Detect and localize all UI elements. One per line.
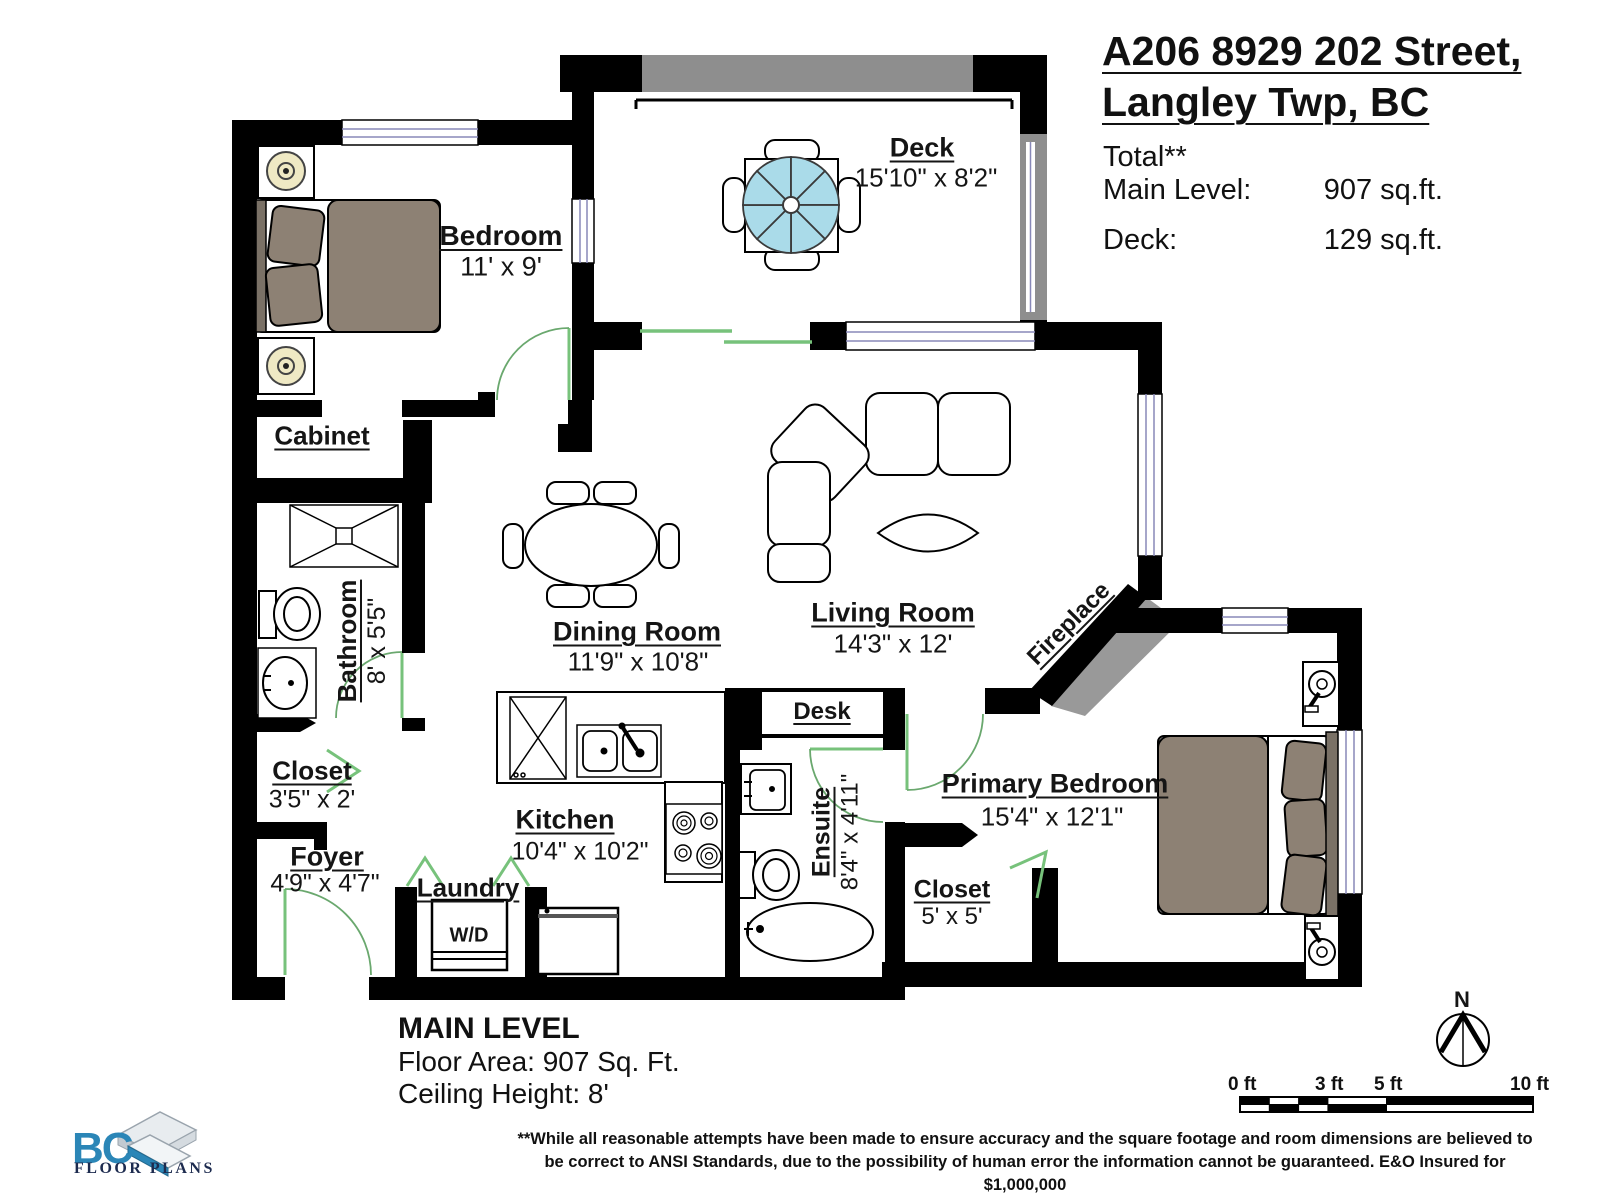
deck-area-row: Deck: 129 sq.ft. <box>1103 224 1443 257</box>
compass-icon <box>1437 1014 1489 1066</box>
window-bedroom-deck <box>572 199 594 263</box>
window-living-right <box>1138 394 1162 556</box>
level-title: MAIN LEVEL <box>398 1012 580 1046</box>
title-line1: A206 8929 202 Street, <box>1102 26 1521 77</box>
washer-dryer-label: W/D <box>450 925 489 948</box>
room-label-ensuite-group: Ensuite 8'4" x 4'11" <box>808 774 865 891</box>
main-level-value: 907 sq.ft. <box>1324 174 1443 207</box>
room-dims-primary: 15'4" x 12'1" <box>981 802 1124 833</box>
toilet-icon <box>259 588 320 640</box>
bedroom-door-icon <box>497 328 569 400</box>
room-label-ensuite: Ensuite <box>808 774 837 891</box>
ensuite-toilet-icon <box>739 850 799 900</box>
room-dims-kitchen: 10'4" x 10'2" <box>511 838 648 867</box>
room-label-closet-hall: Closet <box>272 756 351 787</box>
room-label-cabinet: Cabinet <box>274 421 369 452</box>
room-label-bathroom: Bathroom <box>332 580 363 703</box>
room-label-primary: Primary Bedroom <box>942 769 1169 800</box>
scale-label-3: 3 ft <box>1315 1074 1344 1096</box>
scale-bar <box>1240 1097 1533 1112</box>
primary-bed-icon <box>1158 732 1338 918</box>
patio-set-icon <box>723 140 860 270</box>
ceiling-height-text: Ceiling Height: 8' <box>398 1078 609 1110</box>
room-label-desk: Desk <box>793 698 850 726</box>
total-label: Total** <box>1103 141 1187 174</box>
page-title: A206 8929 202 Street, Langley Twp, BC <box>1102 26 1521 129</box>
fridge-icon <box>538 908 618 974</box>
room-label-deck: Deck <box>890 133 955 164</box>
title-line2: Langley Twp, BC <box>1102 77 1521 128</box>
room-dims-living: 14'3" x 12' <box>834 629 953 660</box>
entry-door-icon <box>285 889 371 975</box>
window-primary-top <box>1222 608 1288 633</box>
room-label-kitchen: Kitchen <box>515 805 614 836</box>
scale-label-10: 10 ft <box>1510 1074 1549 1096</box>
room-label-laundry: Laundry <box>417 873 520 904</box>
compass-north-label: N <box>1454 987 1470 1013</box>
room-dims-dining: 11'9" x 10'8" <box>568 647 709 678</box>
deck-area-label: Deck: <box>1103 224 1177 257</box>
floor-plan-page: A206 8929 202 Street, Langley Twp, BC To… <box>0 0 1600 1200</box>
coffee-table-icon <box>878 515 978 552</box>
deck-area-value: 129 sq.ft. <box>1324 224 1443 257</box>
stove-icon <box>666 804 722 874</box>
room-dims-foyer: 4'9" x 4'7" <box>270 870 379 899</box>
sink-icon <box>577 723 661 777</box>
sofa-icon <box>765 393 1010 582</box>
room-dims-deck: 15'10" x 8'2" <box>855 163 998 194</box>
scale-label-0: 0 ft <box>1228 1074 1257 1096</box>
main-level-row: Main Level: 907 sq.ft. <box>1103 174 1443 207</box>
disclaimer-line2: be correct to ANSI Standards, due to the… <box>510 1151 1540 1197</box>
ensuite-sink-icon <box>741 764 791 814</box>
dining-set-icon <box>503 482 679 607</box>
room-dims-bedroom: 11' x 9' <box>460 252 542 283</box>
bathtub-icon <box>744 903 873 961</box>
window-bedroom-top <box>342 120 478 145</box>
bed-icon <box>256 200 440 332</box>
floor-area-text: Floor Area: 907 Sq. Ft. <box>398 1046 680 1078</box>
room-label-bedroom: Bedroom <box>440 220 563 252</box>
room-label-living: Living Room <box>811 598 975 629</box>
dishwasher-icon <box>510 697 566 779</box>
logo-text: FLOOR PLANS <box>74 1160 215 1178</box>
room-label-dining: Dining Room <box>553 617 721 648</box>
scale-label-5: 5 ft <box>1374 1074 1403 1096</box>
room-label-closet-primary: Closet <box>914 876 990 905</box>
deck-sliding-door-icon <box>640 331 812 342</box>
window-living-deck <box>846 322 1035 350</box>
total-label-row: Total** <box>1103 141 1443 174</box>
disclaimer: **While all reasonable attempts have bee… <box>510 1128 1540 1196</box>
window-primary-right <box>1337 730 1362 894</box>
room-label-foyer: Foyer <box>290 842 364 873</box>
disclaimer-line1: **While all reasonable attempts have bee… <box>510 1128 1540 1151</box>
room-dims-closet-hall: 3'5" x 2' <box>269 786 356 815</box>
main-level-label: Main Level: <box>1103 174 1251 207</box>
shower-icon <box>290 505 398 567</box>
room-dims-ensuite: 8'4" x 4'11" <box>837 774 865 891</box>
room-label-bathroom-group: Bathroom 8' x 5'5" <box>332 580 392 703</box>
bathroom-sink-icon <box>258 648 316 718</box>
room-dims-bathroom: 8' x 5'5" <box>363 580 392 703</box>
room-dims-closet-primary: 5' x 5' <box>921 903 982 931</box>
